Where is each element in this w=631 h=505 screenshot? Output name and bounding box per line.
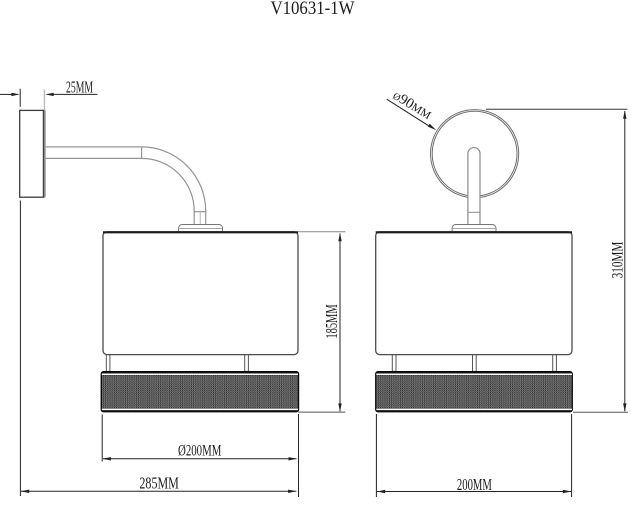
svg-text:Ø200MM: Ø200MM <box>178 443 222 460</box>
svg-text:25MM: 25MM <box>66 77 93 96</box>
svg-text:V10631-1W: V10631-1W <box>271 0 355 19</box>
svg-text:310MM: 310MM <box>609 242 626 279</box>
svg-text:185MM: 185MM <box>322 304 341 338</box>
svg-text:200MM: 200MM <box>457 475 492 494</box>
svg-text:285MM: 285MM <box>139 474 179 493</box>
